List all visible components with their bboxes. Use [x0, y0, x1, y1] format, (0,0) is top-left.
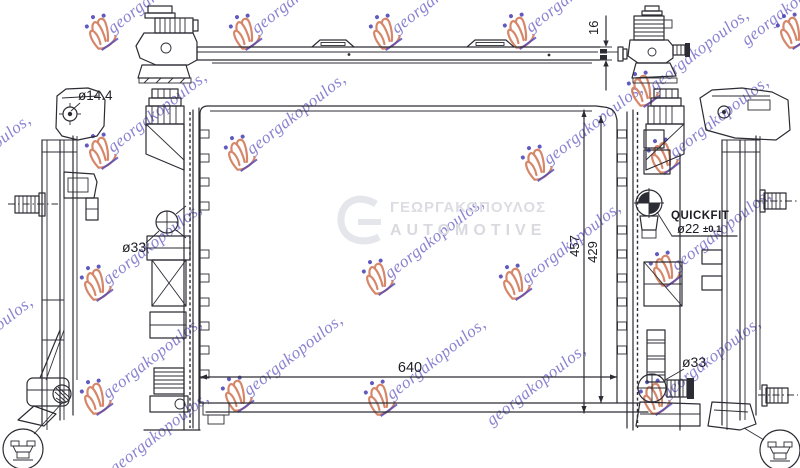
right-side-view	[700, 88, 800, 468]
dimension-top-height-label: 16	[586, 21, 601, 35]
left-tank-column	[144, 89, 200, 430]
radiator-technical-drawing: georgakopoulos,georgakopoulos,georgakopo…	[0, 0, 800, 468]
front-view	[144, 89, 700, 430]
side-pipe	[8, 193, 58, 216]
quickfit-port	[634, 188, 664, 218]
detail-balloon-right	[744, 428, 800, 468]
left-side-view	[3, 88, 105, 468]
quickfit-tolerance-label: ±0.1	[703, 224, 722, 235]
top-view-left-fitting	[136, 6, 198, 83]
top-view-right-valve	[600, 6, 690, 83]
radiator-core	[200, 106, 648, 424]
top-view: 16	[136, 6, 690, 90]
dimension-total-height-label: 457	[567, 235, 582, 257]
dimension-outlet-label: ø33	[682, 354, 706, 370]
dimension-core-height-label: 429	[585, 241, 600, 263]
inlet-port	[156, 206, 186, 238]
dimension-top-height: 16	[586, 16, 612, 90]
detail-balloon-left	[3, 403, 62, 468]
quickfit-size-label: ø22	[677, 221, 699, 236]
drawing-canvas: 16	[0, 0, 800, 468]
dimension-hole-label: ø14.4	[78, 88, 113, 103]
dimension-core-width-label: 640	[398, 360, 422, 376]
dimension-inlet-label: ø33	[122, 239, 146, 255]
